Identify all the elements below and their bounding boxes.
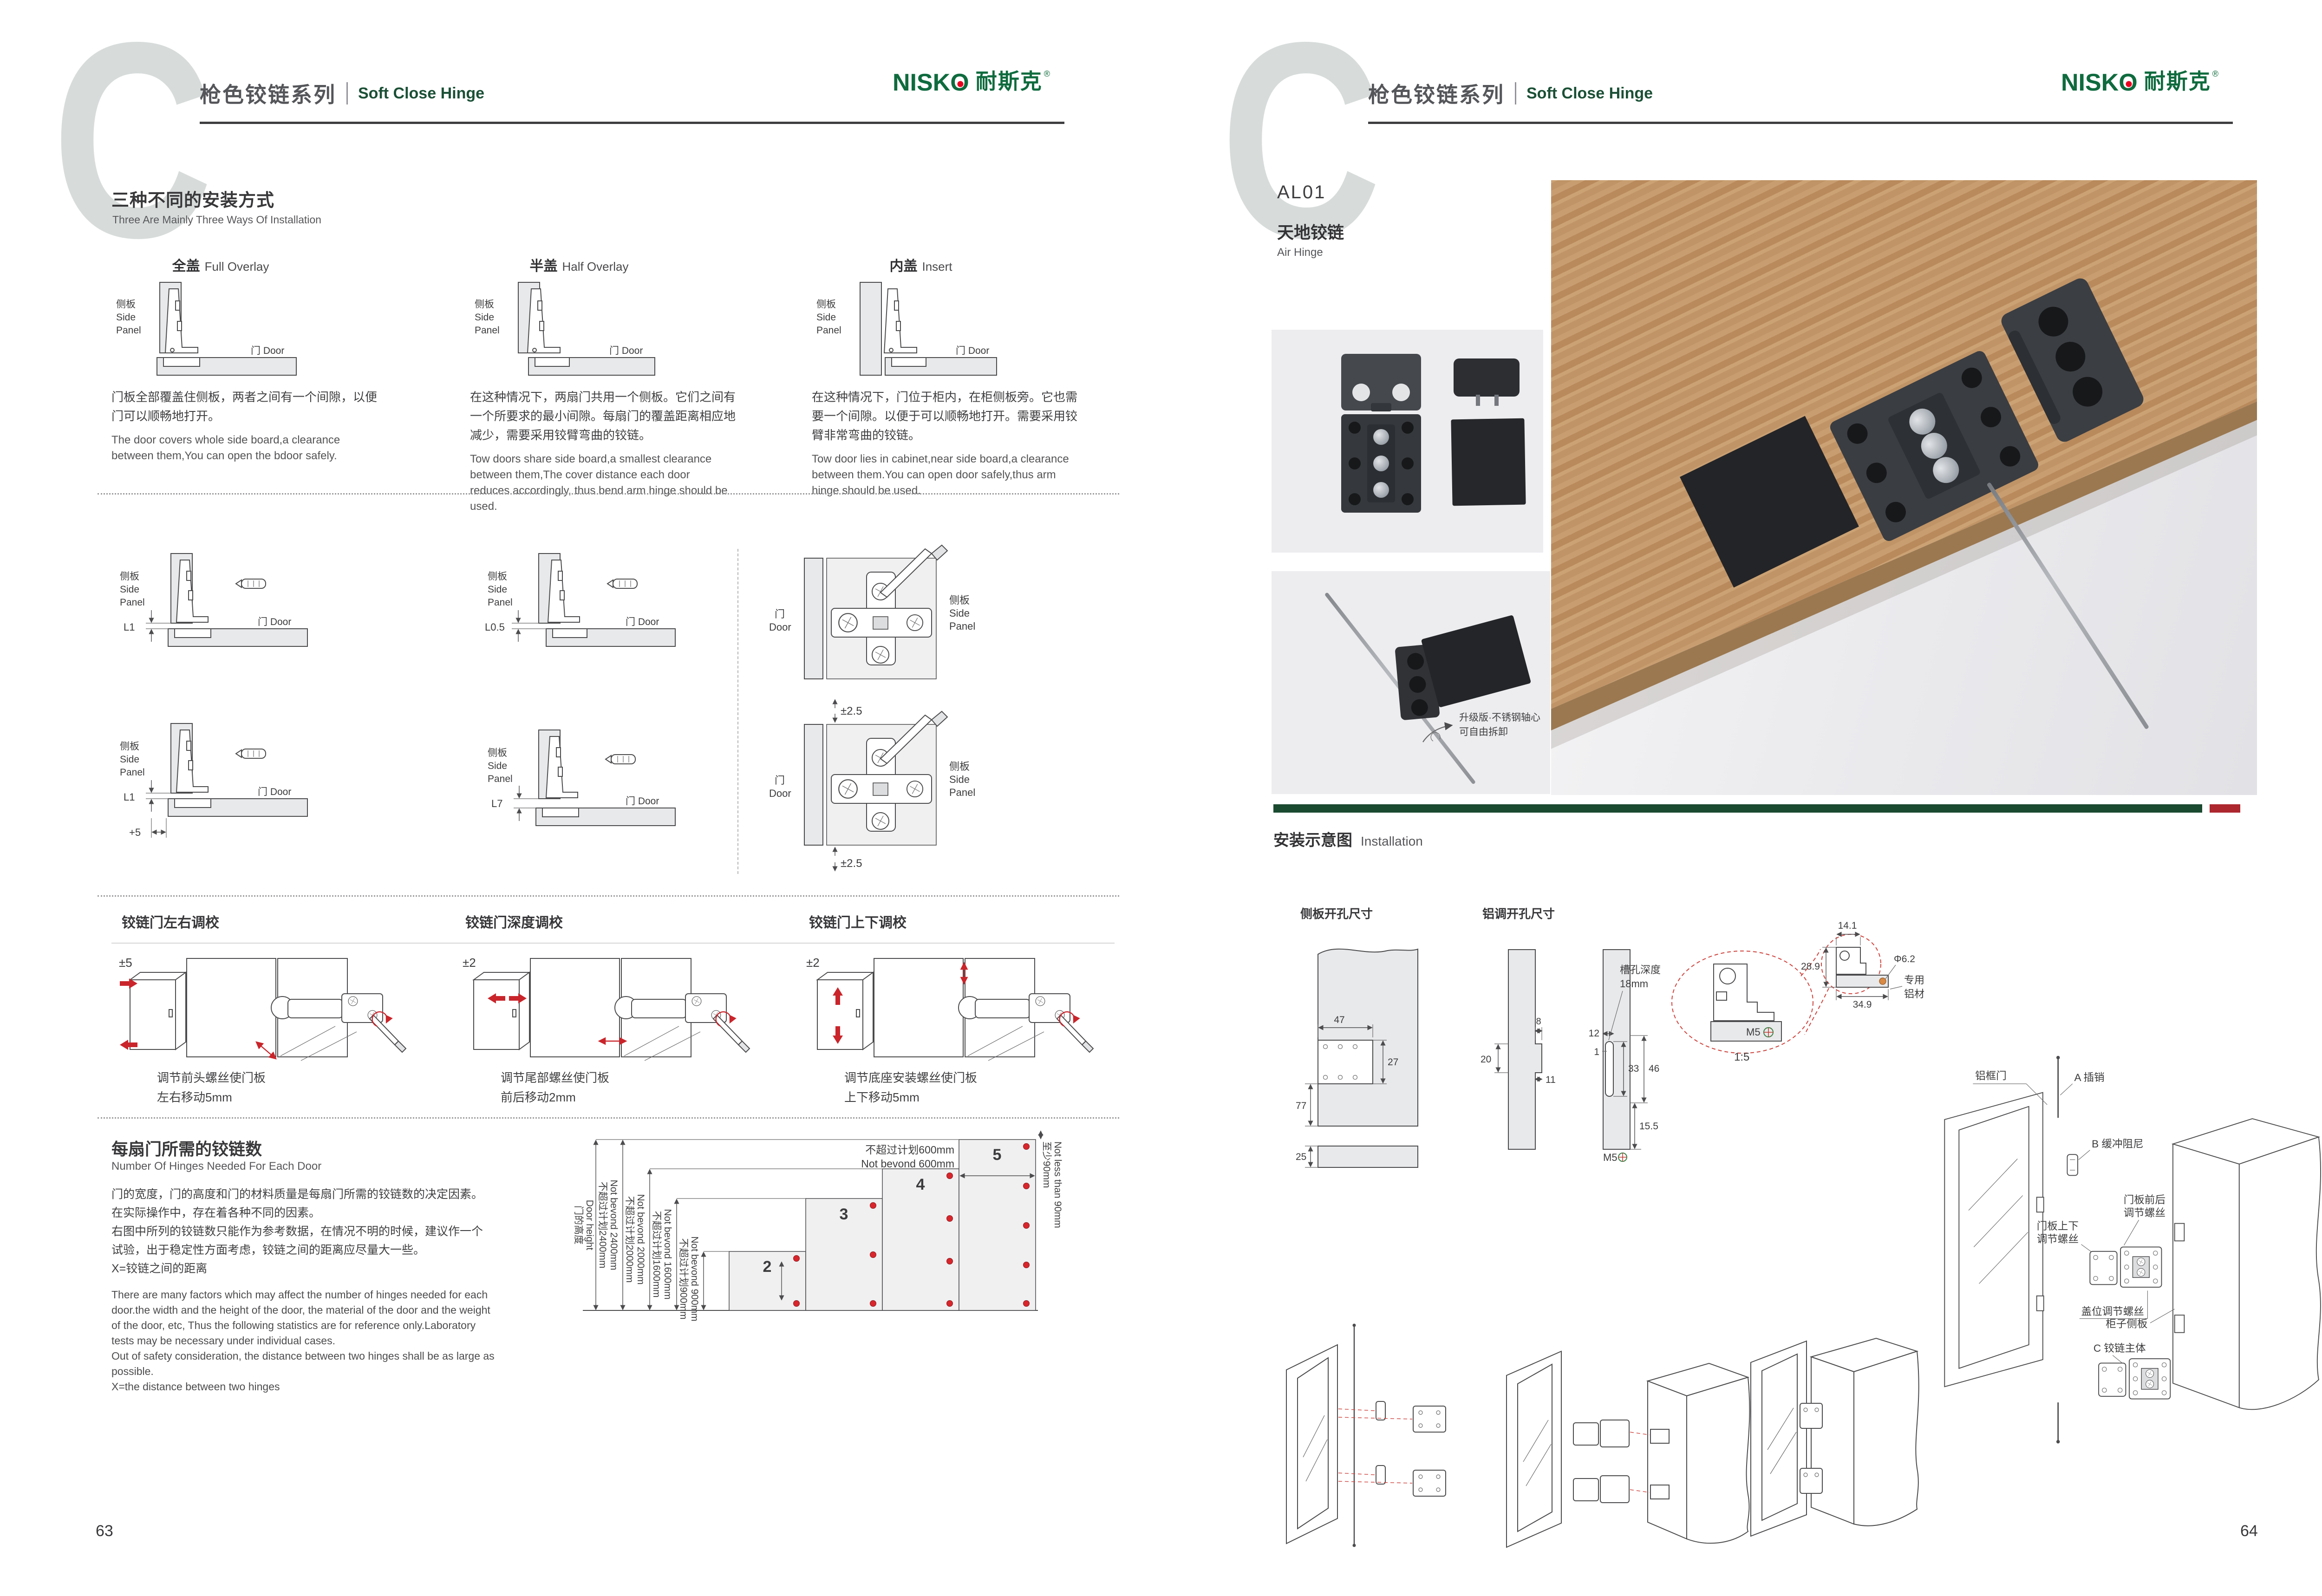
method-title: 内盖Insert <box>812 254 1030 275</box>
sec4-paragraph-en: There are many factors which may affect … <box>111 1287 567 1394</box>
chart-2400-en: Not bevond 2400mm <box>608 1180 619 1270</box>
label-side-en2: Panel <box>949 620 975 632</box>
label-side-en1: Side <box>475 312 494 323</box>
divider-dotted <box>98 493 1119 495</box>
label-door: 门 Door <box>626 617 659 627</box>
logo-cn: 耐斯克 <box>976 71 1043 92</box>
chart-900-cn: 不超过计划900mm <box>678 1238 689 1319</box>
hinge-count-chart: 2 3 4 5 门的高度 Door height 不超过计划2400mm Not… <box>569 1129 1070 1348</box>
method-title: 半盖Half Overlay <box>470 254 688 275</box>
adjust-range: ±2 <box>463 956 476 970</box>
insert-diagram: 侧板 Side Panel 门 Door <box>812 279 1025 378</box>
label-door: 门 Door <box>626 796 659 807</box>
label-door: 门 Door <box>609 345 643 356</box>
screw-icon <box>607 579 637 588</box>
en-line: Out of safety consideration, the distanc… <box>111 1348 567 1364</box>
divider-dashed-vertical <box>737 549 738 874</box>
adjust-diagram-left-right: ±5 <box>117 953 405 1064</box>
method-paragraph-cn: 在这种情况下，门位于柜内，在柜侧板旁。它也需要一个间隙。以便于可以顺畅地打开。需… <box>812 388 1079 445</box>
en-line: tests may be necessary under individual … <box>111 1333 567 1348</box>
label-hinge-body-c: C 铰链主体 <box>2094 1342 2146 1354</box>
label-side-cn: 侧板 <box>475 299 494 310</box>
sec4-title-cn: 每扇门所需的铰链数 <box>111 1136 262 1160</box>
caption-line2: 左右移动5mm <box>157 1088 266 1107</box>
screw-icon <box>606 755 635 764</box>
label-door: 门 Door <box>258 617 291 627</box>
side-panel-drilling-diagram: 47 27 77 25 <box>1295 929 1453 1189</box>
chart-900-en: Not bevond 900mm <box>689 1236 700 1321</box>
bar-count-4: 4 <box>916 1176 925 1193</box>
label-side-cn: 侧板 <box>949 761 970 772</box>
dim-label: L1 <box>124 621 135 633</box>
chart-min90-en: Not less than 90mm <box>1052 1141 1063 1228</box>
product-name-en: Air Hinge <box>1277 246 1323 259</box>
dim-77: 77 <box>1296 1101 1306 1111</box>
dim-1: 1 <box>1594 1047 1599 1057</box>
dim-12: 12 <box>1589 1028 1599 1039</box>
label-side-cn: 侧板 <box>120 741 139 752</box>
label-side-cn: 侧板 <box>116 299 136 310</box>
dim-dia-6-2: Φ6.2 <box>1894 954 1915 964</box>
en-line: possible. <box>111 1364 567 1379</box>
catalog-spread: C 枪色铰链系列 Soft Close Hinge NISKO 耐斯克 ® 三种… <box>0 0 2322 1596</box>
adjust-title-ud: 铰链门上下调校 <box>809 911 907 932</box>
screwdriver <box>370 1015 398 1045</box>
label-door-cn: 门 <box>775 608 785 620</box>
pin <box>1476 395 1480 406</box>
divider-dotted <box>98 1117 1119 1119</box>
dim-label-plus5: +5 <box>129 827 141 838</box>
exploded-installation-diagram: 铝框门 A 插销 B 缓冲阻尼 门板前后 调节螺丝 门板上下 调节螺丝 盖位调节… <box>1903 1053 2322 1462</box>
label-side-en2: Panel <box>120 597 145 608</box>
en-line: There are many factors which may affect … <box>111 1287 567 1303</box>
label-side-cn: 侧板 <box>949 594 970 606</box>
magnet-hole <box>1392 384 1410 401</box>
dim-46: 46 <box>1649 1063 1659 1074</box>
cn-line: 门的宽度，门的高度和门的材料质量是每扇门所需的铰链数的决定因素。 <box>111 1185 567 1204</box>
label-cabinet-side: 柜子侧板 <box>2106 1318 2147 1329</box>
assembly-step-2 <box>1499 1336 1759 1555</box>
label-side-cn: 侧板 <box>816 299 836 310</box>
method-paragraph-en: The door covers whole side board,a clear… <box>111 432 374 464</box>
section-bar-red <box>2210 804 2240 813</box>
alu-frame-drilling-diagram: 8 20 11 12 1 槽孔深度 18mm 33 46 15.5 M5 <box>1464 929 1682 1189</box>
note-line1: 升级版·不锈钢轴心 <box>1459 710 1540 725</box>
assembly-step-1 <box>1276 1318 1499 1550</box>
logo-o-icon: O <box>950 71 969 95</box>
en-line: door.the width and the height of the doo… <box>111 1303 567 1318</box>
label-door: 门 Door <box>251 345 284 356</box>
chart-2000-en: Not bevond 2000mm <box>635 1194 646 1285</box>
hinge-assembly-lower <box>2099 1359 2170 1399</box>
logo-cn: 耐斯克 <box>2144 71 2211 92</box>
adjust-range: ±5 <box>119 956 132 970</box>
slot-depth-label: 槽孔深度 <box>1620 964 1661 976</box>
adjust-title-depth: 铰链门深度调校 <box>465 911 563 932</box>
en-line: of the door, etc, Thus the following sta… <box>111 1318 567 1333</box>
mounting-plate-diagram-top: 门 Door 侧板 Side Panel <box>765 549 1025 688</box>
chart-1600-en: Not bevond 1600mm <box>662 1209 673 1300</box>
dim-label: L1 <box>124 791 135 803</box>
detail-scale: 1:5 <box>1734 1051 1749 1063</box>
label-side-en1: Side <box>120 754 139 765</box>
label-m5: M5 <box>1603 1152 1618 1163</box>
d2-title: 铝调开孔尺寸 <box>1482 905 1555 922</box>
screwdriver <box>1057 1015 1086 1045</box>
caption-line2: 前后移动2mm <box>501 1088 609 1107</box>
bar-count-3: 3 <box>840 1205 848 1223</box>
method-paragraph-cn: 门板全部覆盖住侧板，两者之间有一个间隙，以便门可以顺畅地打开。 <box>111 388 378 426</box>
hinge-knuckle <box>1371 403 1391 411</box>
screw-head <box>907 781 923 797</box>
label-side-en1: Side <box>116 312 136 323</box>
dim-label: L7 <box>491 798 502 809</box>
label-side-en2: Panel <box>949 787 975 798</box>
dim-47: 47 <box>1334 1015 1344 1025</box>
sec4-paragraph-cn: 门的宽度，门的高度和门的材料质量是每扇门所需的铰链数的决定因素。 在实际操作中，… <box>111 1185 567 1278</box>
label-side-en1: Side <box>816 312 836 323</box>
method-paragraph-en: Tow door lies in cabinet,near side board… <box>812 451 1074 499</box>
chart-min90-cn: 至少90mm <box>1041 1141 1052 1188</box>
screw-head <box>692 997 701 1006</box>
label-side-cn: 侧板 <box>488 748 507 758</box>
mounting-plate-diagram-bottom: 门 Door ±2.5 ±2.5 侧板 Side Panel <box>765 694 1025 876</box>
cn-line: 试验，出于稳定性方面考虑，铰链之间的距离应尽量大一些。 <box>111 1241 567 1259</box>
label-side-en1: Side <box>949 774 970 785</box>
pin-housing <box>1454 358 1520 397</box>
label-alu-frame-door: 铝框门 <box>1975 1070 2007 1081</box>
method-paragraph-en: Tow doors share side board,a smallest cl… <box>470 451 732 515</box>
screw-icon <box>236 579 266 588</box>
label-up-down-1: 门板上下 <box>2037 1220 2079 1232</box>
label-door-cn: 门 <box>775 775 785 786</box>
bar-count-2: 2 <box>763 1258 772 1276</box>
dim-pm25-top: ±2.5 <box>841 705 862 717</box>
clearance-diagram-L0-5: 侧板 Side Panel 门 Door L0.5 <box>484 549 702 651</box>
hinge-assembly-upper <box>2090 1247 2161 1287</box>
screwdriver <box>713 1015 742 1045</box>
product-photo-parts <box>1272 330 1543 553</box>
sec4-title-en: Number Of Hinges Needed For Each Door <box>111 1160 321 1173</box>
label-front-back-2: 调节螺丝 <box>2124 1207 2165 1219</box>
chart-doorheight-cn: 门的高度 <box>573 1205 584 1244</box>
adjust-diagram-up-down: ±2 <box>804 953 1092 1064</box>
dim-33: 33 <box>1628 1063 1639 1074</box>
clearance-diagram-L7: 侧板 Side Panel 门 Door L7 <box>484 725 702 833</box>
dim-34-9: 34.9 <box>1853 999 1872 1010</box>
label-up-down-2: 调节螺丝 <box>2037 1233 2079 1245</box>
logo-main: NISK <box>2061 69 2119 96</box>
label-side-en2: Panel <box>120 767 145 778</box>
screw-head <box>872 646 889 663</box>
logo-text: NISKO <box>2061 71 2138 95</box>
cover-pad <box>1421 615 1531 708</box>
label-side-cn: 侧板 <box>488 571 507 582</box>
dim-14-1: 14.1 <box>1838 920 1857 931</box>
page-number-right: 64 <box>2240 1522 2258 1540</box>
label-door-en: Door <box>769 788 791 799</box>
caption-line1: 调节底座安装螺丝使门板 <box>844 1068 977 1088</box>
label-side-en2: Panel <box>116 325 141 336</box>
screw-head <box>839 780 857 798</box>
logo-registered-icon: ® <box>2212 70 2218 78</box>
chart-2400-cn: 不超过计划2400mm <box>597 1182 608 1269</box>
label-door: 门 Door <box>956 345 989 356</box>
method-title-en: Half Overlay <box>562 260 628 274</box>
sec1-title-cn: 三种不同的安装方式 <box>111 186 274 211</box>
method-title-en: Full Overlay <box>205 260 269 274</box>
header-rule <box>200 122 1064 124</box>
section-bar-green <box>1273 804 2202 813</box>
installation-cn: 安装示意图 <box>1273 827 1352 850</box>
installation-heading: 安装示意图 Installation <box>1273 827 1423 850</box>
series-title-cn: 枪色铰链系列 <box>1368 78 1505 109</box>
adjust-caption-lr: 调节前头螺丝使门板 左右移动5mm <box>157 1068 266 1107</box>
en-line: X=the distance between two hinges <box>111 1379 567 1394</box>
label-alu1: 专用 <box>1904 974 1924 986</box>
label-front-back-1: 门板前后 <box>2124 1194 2165 1205</box>
series-title-en: Soft Close Hinge <box>1526 85 1653 103</box>
logo-o-icon: O <box>2119 71 2137 95</box>
bar-count-5: 5 <box>993 1146 1002 1164</box>
label-side-en2: Panel <box>488 597 513 608</box>
label-damper-b: B 缓冲阻尼 <box>2092 1138 2144 1150</box>
label-side-en1: Side <box>120 584 139 595</box>
logo-text: NISKO <box>893 71 969 95</box>
series-title-en: Soft Close Hinge <box>358 85 484 103</box>
caption-line1: 调节前头螺丝使门板 <box>157 1068 266 1088</box>
chart-600-en: Not bevond 600mm <box>861 1158 954 1170</box>
method-title-cn: 全盖 <box>172 259 200 274</box>
dim-28-9: 28.9 <box>1801 961 1820 972</box>
label-side-en2: Panel <box>816 325 841 336</box>
dim-label: L0.5 <box>485 621 505 633</box>
pin <box>1494 395 1499 406</box>
assembly-step-3 <box>1737 1329 1960 1547</box>
screw-head <box>872 813 889 829</box>
label-door: 门 Door <box>258 787 291 797</box>
dim-20: 20 <box>1481 1054 1491 1065</box>
page-number-left: 63 <box>96 1522 113 1540</box>
label-m5: M5 <box>1746 1026 1761 1038</box>
method-title-cn: 半盖 <box>529 259 557 274</box>
cover-pad <box>1451 418 1526 506</box>
label-side-en2: Panel <box>488 774 513 784</box>
label-side-en1: Side <box>488 761 507 771</box>
logo-registered-icon: ® <box>1044 70 1050 78</box>
screw-icon <box>236 749 266 758</box>
cn-line: 右图中所列的铰链数只能作为参考数据，在情况不明的时候，建议作一个 <box>111 1222 567 1241</box>
half-overlay-diagram: 侧板 Side Panel 门 Door <box>470 279 684 378</box>
note-arrow-icon <box>1419 721 1456 749</box>
dim-pm25-bottom: ±2.5 <box>841 857 862 870</box>
chart-2000-cn: 不超过计划2000mm <box>624 1196 635 1283</box>
header-separator <box>1515 82 1516 104</box>
clearance-diagram-L1: 侧板 Side Panel 门 Door L1 <box>116 549 334 651</box>
screw-head <box>839 613 857 632</box>
caption-line2: 上下移动5mm <box>844 1088 977 1107</box>
installation-en: Installation <box>1361 834 1423 849</box>
caption-line1: 调节尾部螺丝使门板 <box>501 1068 609 1088</box>
product-hero-photo <box>1551 180 2257 795</box>
dim-27: 27 <box>1388 1057 1398 1068</box>
label-alu2: 铝材 <box>1904 988 1924 1000</box>
dim-8: 8 <box>1536 1016 1541 1027</box>
series-c-watermark: C <box>1220 34 1382 246</box>
header-rule <box>1368 122 2233 124</box>
label-side-en2: Panel <box>475 325 500 336</box>
label-side-en1: Side <box>949 607 970 619</box>
full-overlay-diagram: 侧板 Side Panel 门 Door <box>111 279 325 378</box>
profile-detail-circle: M5 1:5 <box>1668 947 1821 1077</box>
adjust-rule <box>111 943 1115 944</box>
adjust-title-lr: 铰链门左右调校 <box>122 911 219 932</box>
adjust-caption-depth: 调节尾部螺丝使门板 前后移动2mm <box>501 1068 609 1107</box>
series-title-cn: 枪色铰链系列 <box>200 78 336 109</box>
method-full-overlay: 全盖Full Overlay 侧板 Side Panel 门 Door 门板全部… <box>111 254 413 464</box>
screw-head <box>1036 997 1045 1006</box>
screw-head <box>907 615 923 631</box>
adjust-caption-ud: 调节底座安装螺丝使门板 上下移动5mm <box>844 1068 977 1107</box>
label-door-en: Door <box>769 621 791 633</box>
method-half-overlay: 半盖Half Overlay 侧板 Side Panel 门 Door 在这种情… <box>470 254 776 515</box>
clearance-diagram-L1-plus5: 侧板 Side Panel 门 Door L1 +5 <box>116 719 334 843</box>
dim-25: 25 <box>1296 1152 1306 1162</box>
magnet-hole <box>1352 384 1370 401</box>
d1-title: 侧板开孔尺寸 <box>1300 905 1373 922</box>
brand-logo: NISKO 耐斯克 ® <box>2061 71 2218 95</box>
label-pin-a: A 插销 <box>2074 1072 2104 1083</box>
cn-line: X=铰链之间的距离 <box>111 1259 567 1278</box>
method-paragraph-cn: 在这种情况下，两扇门共用一个侧板。它们之间有一个所要求的最小间隙。每扇门的覆盖距… <box>470 388 737 445</box>
product-photo-assembled: 升级版·不锈钢轴心 可自由拆卸 <box>1272 571 1550 794</box>
hinge-base-plate <box>1341 414 1421 513</box>
note-line2: 可自由拆卸 <box>1459 725 1540 739</box>
product-name-cn: 天地铰链 <box>1277 219 1344 243</box>
chart-600-cn: 不超过计划600mm <box>865 1144 954 1156</box>
dim-11: 11 <box>1546 1075 1556 1085</box>
cn-line: 在实际操作中，存在着各种不同的因素。 <box>111 1204 567 1222</box>
adjust-diagram-depth: ±2 <box>461 953 749 1064</box>
hinge-top-plate <box>1341 354 1421 410</box>
slot-depth-value: 18mm <box>1620 978 1648 990</box>
brand-logo: NISKO 耐斯克 ® <box>893 71 1050 95</box>
divider-dotted <box>98 895 1119 897</box>
product-model: AL01 <box>1277 182 1326 203</box>
chart-1600-cn: 不超过计划1600mm <box>651 1211 662 1298</box>
adjust-bracket <box>1887 391 1981 500</box>
dim-15-5: 15.5 <box>1639 1121 1658 1132</box>
method-title-en: Insert <box>922 260 952 274</box>
sec1-title-en: Three Are Mainly Three Ways Of Installat… <box>112 214 321 226</box>
logo-main: NISK <box>893 69 950 96</box>
method-title: 全盖Full Overlay <box>111 254 330 275</box>
label-side-cn: 侧板 <box>120 571 139 582</box>
adjust-bracket <box>1367 424 1395 502</box>
chart-doorheight-en: Door height <box>584 1200 595 1251</box>
page-header-right: 枪色铰链系列 Soft Close Hinge <box>1368 78 1653 109</box>
photo-note: 升级版·不锈钢轴心 可自由拆卸 <box>1459 710 1540 739</box>
screw-head <box>348 997 358 1006</box>
method-title-cn: 内盖 <box>889 259 917 274</box>
method-insert: 内盖Insert 侧板 Side Panel 门 Door 在这种情况下，门位于… <box>812 254 1109 499</box>
profile-mini-detail: 14.1 28.9 Φ6.2 34.9 专用 铝材 <box>1801 919 1950 1049</box>
adjust-range: ±2 <box>806 956 820 970</box>
page-header-left: 枪色铰链系列 Soft Close Hinge <box>200 78 484 109</box>
header-separator <box>346 82 348 104</box>
label-side-en1: Side <box>488 584 507 595</box>
label-cover-adjust: 盖位调节螺丝 <box>2081 1306 2144 1317</box>
